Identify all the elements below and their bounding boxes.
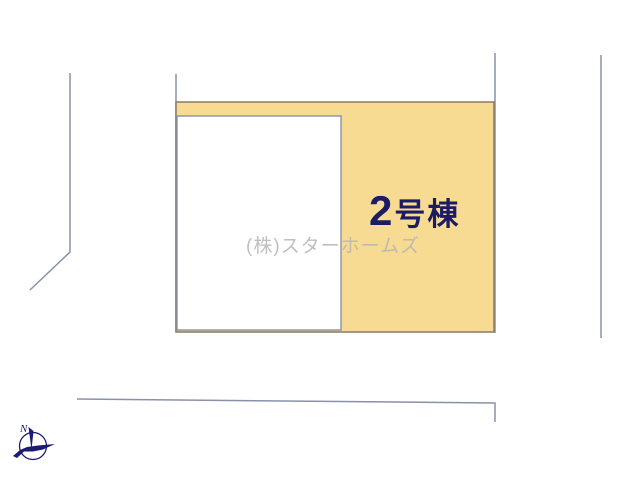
- plot-2-label: 2 号棟: [369, 190, 460, 232]
- building-footprint: [177, 116, 341, 330]
- plot-2-number: 2: [369, 190, 394, 232]
- compass-icon: N: [11, 419, 61, 469]
- plot-2-suffix: 号棟: [394, 199, 460, 230]
- boundary-line-bottom: [77, 399, 495, 422]
- compass-north-label: N: [19, 423, 28, 435]
- watermark-text: (株)スターホームズ: [246, 231, 420, 258]
- boundary-line-left: [30, 73, 70, 290]
- site-plan-canvas: (株)スターホームズ 2 号棟 N: [0, 0, 640, 480]
